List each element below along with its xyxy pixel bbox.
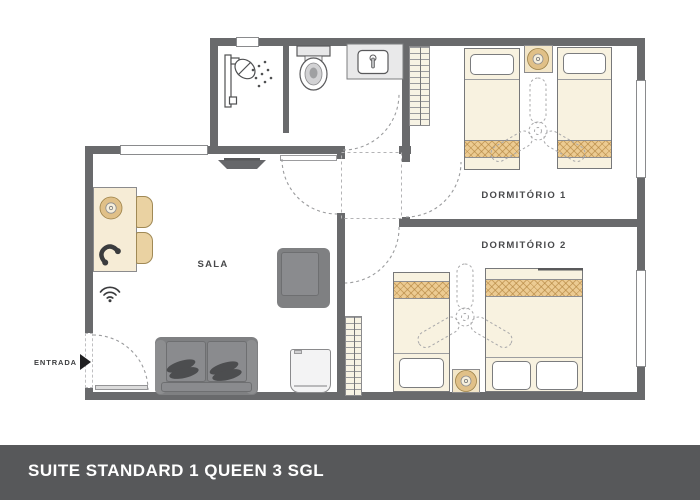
shower-icon bbox=[225, 55, 272, 107]
window-bedroom2 bbox=[636, 270, 646, 367]
toilet-icon bbox=[297, 46, 330, 90]
entrance-door-arc bbox=[93, 335, 148, 390]
bed-sheet-line bbox=[465, 79, 519, 80]
footer-bar: SUITE STANDARD 1 QUEEN 3 SGL bbox=[0, 445, 700, 500]
bed-sheet-line bbox=[394, 353, 449, 354]
bedroom2-wardrobe bbox=[345, 316, 362, 396]
bedroom2-queen-bed bbox=[485, 268, 583, 392]
sink-icon bbox=[347, 44, 403, 79]
entrance-label: ENTRADA bbox=[18, 358, 77, 367]
sala-door-leaf-open bbox=[280, 155, 337, 161]
wall-top bbox=[210, 38, 645, 46]
bed-blanket bbox=[486, 279, 582, 297]
entrance-arrow-icon bbox=[80, 354, 91, 370]
window-sala bbox=[120, 145, 208, 155]
room-type-title: SUITE STANDARD 1 QUEEN 3 SGL bbox=[28, 445, 324, 496]
sala-chair-top bbox=[136, 196, 153, 228]
wall-hall-west-upper bbox=[337, 146, 345, 159]
minibar-handle bbox=[294, 350, 302, 354]
bed-blanket bbox=[558, 140, 611, 158]
bathroom-door-arc bbox=[343, 94, 399, 150]
sala-door-arc bbox=[282, 159, 337, 214]
window-bathroom bbox=[236, 37, 259, 47]
wall-hall-west-mid bbox=[337, 213, 345, 227]
bed-pillow bbox=[563, 53, 606, 74]
sala-sofa-cushion-right bbox=[207, 341, 247, 382]
sala-armchair-seat bbox=[281, 252, 319, 296]
bedroom1-wardrobe bbox=[409, 46, 430, 126]
bed-pillow bbox=[470, 54, 514, 75]
wall-sala-top-b bbox=[208, 146, 341, 154]
wall-sala-top-a bbox=[85, 146, 120, 154]
wall-sala-bedroom2 bbox=[337, 227, 345, 392]
bedroom2-single-bed bbox=[393, 272, 450, 392]
bed-sheet-line bbox=[486, 357, 582, 358]
bedroom1-label: DORMITÓRIO 1 bbox=[450, 190, 598, 201]
bed-sheet-line bbox=[558, 79, 611, 80]
window-bedroom1 bbox=[636, 80, 646, 178]
minibar-line bbox=[294, 385, 327, 387]
wall-left-lower bbox=[85, 388, 93, 400]
bedroom1-nightstand bbox=[524, 45, 553, 73]
bedroom2-door-arc bbox=[345, 227, 399, 283]
wall-bathroom-partition bbox=[283, 46, 289, 133]
bed-pillow-left bbox=[492, 361, 531, 390]
bed-pillow-right bbox=[536, 361, 578, 390]
sala-chair-bottom bbox=[136, 232, 153, 264]
sala-sofa-cushion-left bbox=[166, 341, 206, 382]
wall-bedroom-divider bbox=[399, 219, 645, 227]
floor-plan-screenshot: DORMITÓRIO 1 DORMITÓRIO 2 SALA ENTRADA bbox=[0, 0, 700, 500]
bedroom2-nightstand bbox=[452, 369, 480, 393]
wall-bathroom-left bbox=[210, 46, 218, 146]
bed-pillow bbox=[399, 358, 444, 388]
sala-label: SALA bbox=[168, 259, 258, 270]
bedroom1-single-bed-left bbox=[464, 48, 520, 170]
wifi-icon bbox=[101, 287, 120, 302]
entrance-door-leaf bbox=[95, 385, 148, 390]
bed-blanket bbox=[394, 281, 449, 299]
wall-hall-east-upper bbox=[402, 146, 410, 162]
sala-sofa-back bbox=[161, 382, 252, 392]
bed-blanket bbox=[465, 140, 519, 158]
bedroom2-label: DORMITÓRIO 2 bbox=[450, 240, 598, 251]
bedroom1-single-bed-right bbox=[557, 47, 612, 169]
hall-outline bbox=[342, 153, 402, 219]
sala-desk bbox=[93, 187, 137, 272]
tv-icon bbox=[218, 158, 266, 169]
wall-left-upper bbox=[85, 146, 93, 333]
